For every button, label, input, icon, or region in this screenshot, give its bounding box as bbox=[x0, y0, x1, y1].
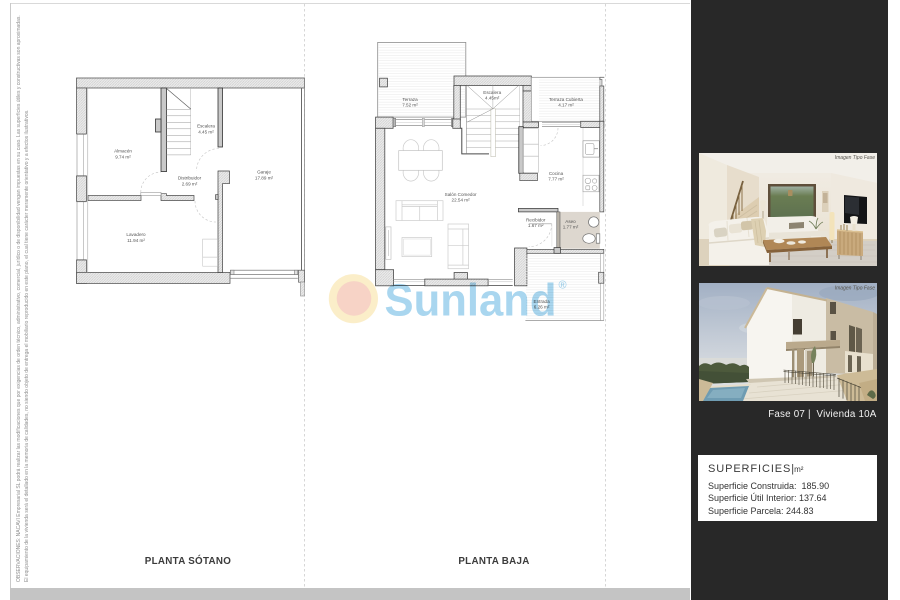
svg-text:Distribuidor: Distribuidor bbox=[178, 176, 202, 181]
svg-text:Escalera: Escalera bbox=[197, 124, 215, 129]
svg-text:Cocina: Cocina bbox=[549, 171, 564, 176]
svg-text:17.89 m²: 17.89 m² bbox=[255, 176, 274, 181]
svg-text:Terraza: Terraza bbox=[402, 97, 418, 102]
svg-text:Imagen Tipo Fase: Imagen Tipo Fase bbox=[835, 286, 875, 292]
svg-text:Lavadero: Lavadero bbox=[126, 232, 146, 237]
svg-text:7.77 m²: 7.77 m² bbox=[548, 177, 564, 182]
svg-text:2.69 m²: 2.69 m² bbox=[182, 182, 198, 187]
svg-text:4.45 m²: 4.45 m² bbox=[198, 130, 214, 135]
svg-text:Recibidor: Recibidor bbox=[526, 217, 546, 222]
svg-text:Imagen Tipo Fase: Imagen Tipo Fase bbox=[835, 155, 875, 161]
svg-text:®: ® bbox=[559, 280, 567, 292]
svg-text:Garaje: Garaje bbox=[257, 170, 271, 175]
svg-text:22.54 m²: 22.54 m² bbox=[452, 198, 471, 203]
svg-text:4.17 m²: 4.17 m² bbox=[558, 102, 574, 107]
svg-text:1.67 m²: 1.67 m² bbox=[528, 223, 544, 228]
svg-text:9.74 m²: 9.74 m² bbox=[115, 155, 131, 160]
svg-text:Almacén: Almacén bbox=[114, 149, 132, 154]
svg-text:Salón Comedor: Salón Comedor bbox=[445, 192, 477, 197]
svg-text:4.45m²: 4.45m² bbox=[485, 96, 500, 101]
svg-text:Aseo: Aseo bbox=[565, 219, 576, 224]
svg-text:1.77 m²: 1.77 m² bbox=[563, 225, 579, 230]
svg-text:Terraza Cubierta: Terraza Cubierta bbox=[549, 97, 583, 102]
svg-text:7.52 m²: 7.52 m² bbox=[402, 102, 418, 107]
svg-text:11.94 m²: 11.94 m² bbox=[127, 238, 145, 243]
svg-text:Escalera: Escalera bbox=[483, 90, 501, 95]
svg-text:Sunland: Sunland bbox=[385, 275, 557, 326]
